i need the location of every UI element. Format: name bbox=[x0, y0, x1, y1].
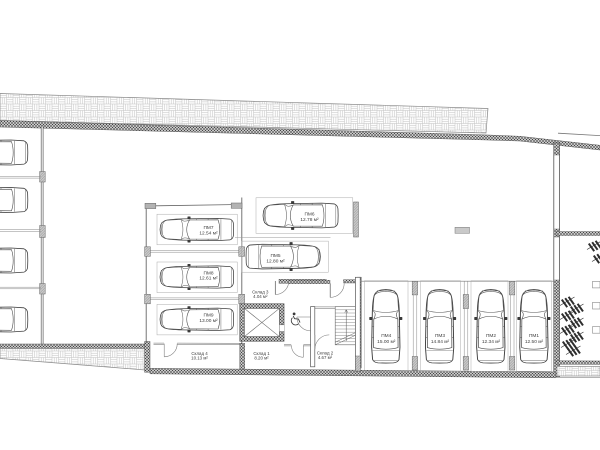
svg-text:ПМ1: ПМ1 bbox=[529, 333, 539, 339]
svg-text:12.80 м²: 12.80 м² bbox=[266, 259, 285, 265]
svg-text:14.84 м²: 14.84 м² bbox=[431, 339, 450, 345]
svg-text:ПМ9: ПМ9 bbox=[203, 312, 213, 318]
svg-text:ПМ5: ПМ5 bbox=[270, 253, 280, 259]
svg-text:13.00 м²: 13.00 м² bbox=[199, 318, 218, 324]
svg-text:12.54 м²: 12.54 м² bbox=[199, 231, 218, 237]
svg-text:8.20 м²: 8.20 м² bbox=[254, 356, 269, 361]
svg-text:ПМ3: ПМ3 bbox=[435, 333, 445, 339]
svg-text:ПМ2: ПМ2 bbox=[486, 333, 496, 339]
svg-text:4.67 м²: 4.67 м² bbox=[318, 355, 333, 360]
svg-text:ПМ6: ПМ6 bbox=[304, 212, 314, 218]
svg-text:12.50 м²: 12.50 м² bbox=[525, 339, 544, 345]
svg-text:10.13 м²: 10.13 м² bbox=[191, 356, 208, 361]
svg-text:12.61 м²: 12.61 м² bbox=[199, 276, 218, 282]
svg-text:ПМ8: ПМ8 bbox=[203, 270, 213, 276]
svg-text:ПМ4: ПМ4 bbox=[381, 333, 391, 339]
svg-text:ПМ7: ПМ7 bbox=[203, 225, 213, 231]
svg-text:12.34 м²: 12.34 м² bbox=[482, 339, 501, 345]
svg-text:15.00 м²: 15.00 м² bbox=[377, 339, 396, 345]
svg-text:4.04 м²: 4.04 м² bbox=[253, 294, 268, 299]
svg-text:12.78 м²: 12.78 м² bbox=[300, 217, 319, 223]
